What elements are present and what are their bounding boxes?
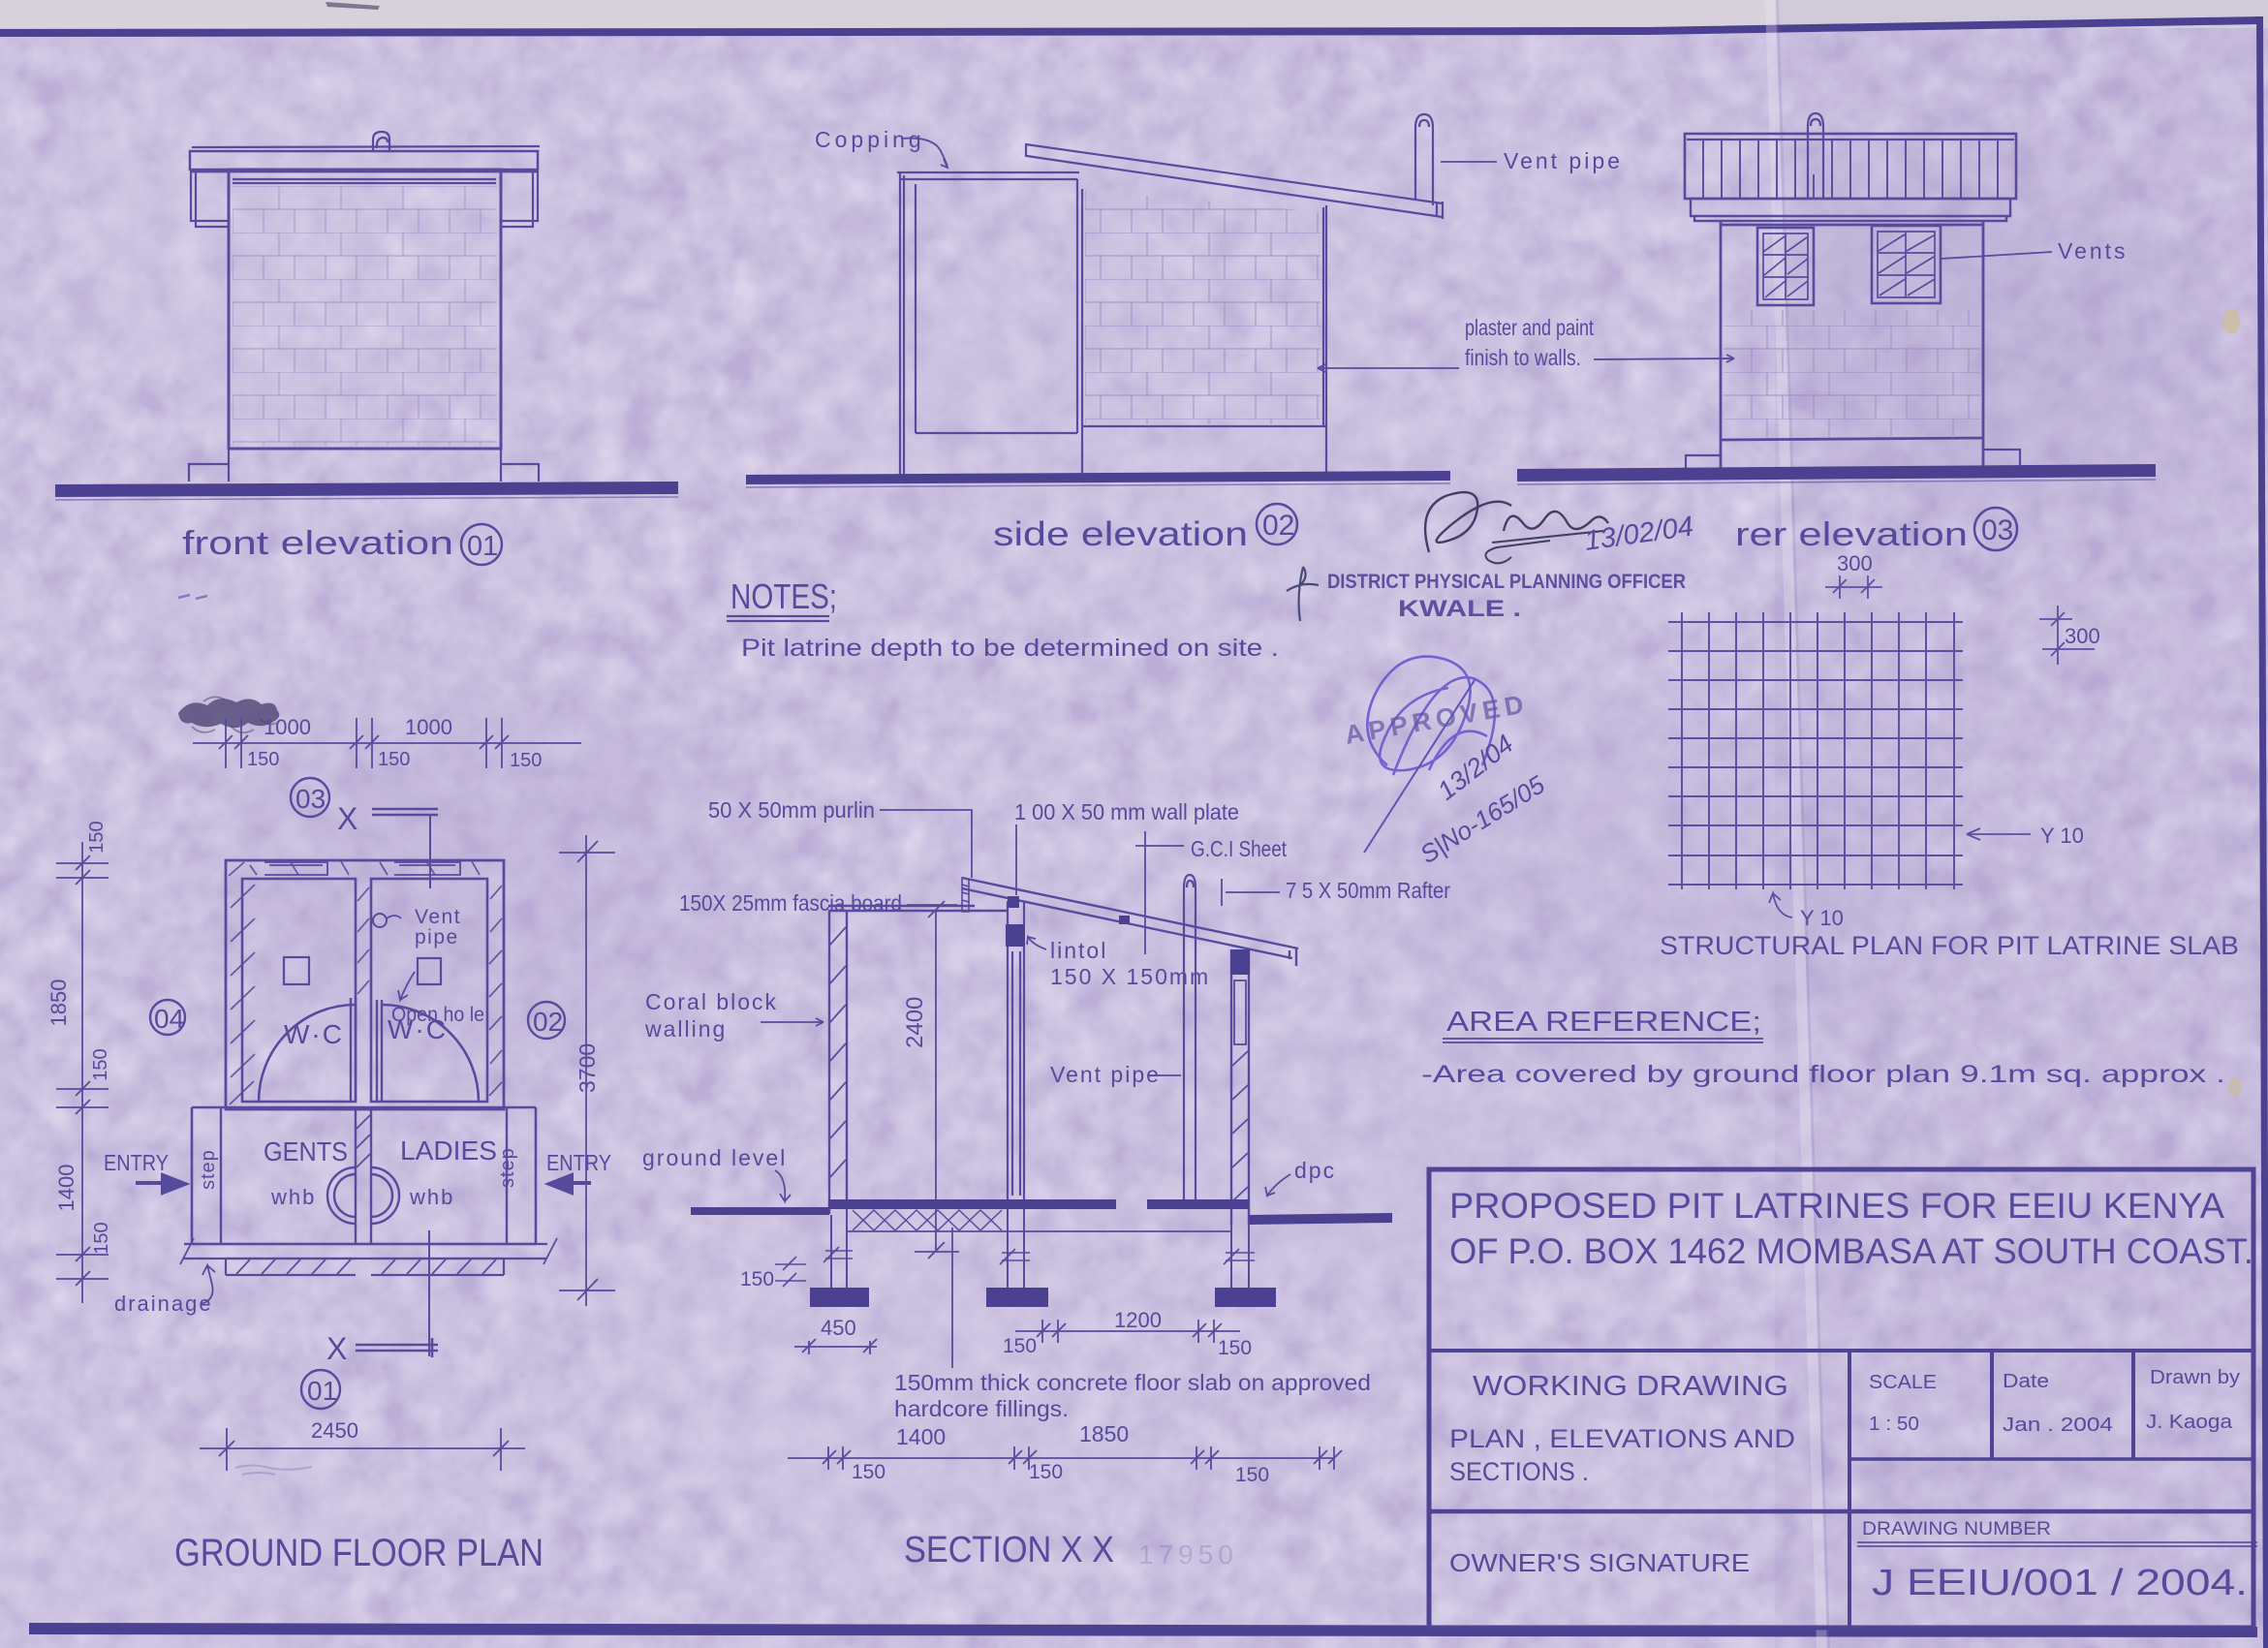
svg-text:Y 10: Y 10 xyxy=(1800,906,1844,930)
svg-text:150: 150 xyxy=(740,1268,774,1290)
svg-text:SECTIONS .: SECTIONS . xyxy=(1449,1457,1589,1486)
svg-text:W·C: W·C xyxy=(284,1019,344,1049)
svg-text:PROPOSED PIT LATRINES FOR: PROPOSED PIT LATRINES FOR EEIU KENYA xyxy=(1449,1186,2224,1226)
svg-text:02: 02 xyxy=(533,1007,563,1037)
svg-text:Date: Date xyxy=(2003,1371,2049,1392)
svg-text:ENTRY: ENTRY xyxy=(546,1150,611,1175)
svg-text:150: 150 xyxy=(90,1048,111,1080)
svg-text:hardcore fillings.: hardcore fillings. xyxy=(894,1396,1069,1421)
svg-text:1400: 1400 xyxy=(896,1424,946,1449)
svg-text:plaster and paint: plaster and paint xyxy=(1465,315,1594,340)
svg-text:Pit latrine depth to be d: Pit latrine depth to be determined on si… xyxy=(741,635,1279,662)
svg-text:step: step xyxy=(198,1149,219,1190)
svg-text:front elevation: front elevation xyxy=(182,525,453,562)
svg-text:02: 02 xyxy=(1262,510,1294,542)
svg-text:X: X xyxy=(337,801,357,836)
svg-text:dpc: dpc xyxy=(1294,1158,1336,1183)
svg-text:1000: 1000 xyxy=(405,715,452,739)
svg-text:300: 300 xyxy=(2065,624,2100,648)
svg-text:Vents: Vents xyxy=(2058,238,2128,264)
svg-text:150: 150 xyxy=(1003,1335,1037,1357)
svg-text:150mm thick concrete floor: 150mm thick concrete floor slab on appro… xyxy=(894,1370,1371,1395)
svg-text:G.C.I Sheet: G.C.I Sheet xyxy=(1191,836,1287,861)
svg-text:150 X 150mm: 150 X 150mm xyxy=(1050,964,1210,989)
svg-text:1850: 1850 xyxy=(47,979,71,1027)
svg-text:150: 150 xyxy=(1218,1337,1252,1359)
svg-text:walling: walling xyxy=(644,1016,727,1042)
svg-text:J EEIU/001 / 2004.: J EEIU/001 / 2004. xyxy=(1872,1563,2248,1603)
svg-text:DRAWING NUMBER: DRAWING NUMBER xyxy=(1862,1519,2051,1539)
svg-text:03: 03 xyxy=(295,784,326,814)
svg-text:50 X 50mm purlin: 50 X 50mm purlin xyxy=(708,797,875,823)
svg-text:Vent pipe: Vent pipe xyxy=(1504,148,1623,173)
svg-text:150: 150 xyxy=(378,749,410,770)
svg-text:side elevation: side elevation xyxy=(993,515,1248,553)
svg-text:150: 150 xyxy=(1029,1461,1063,1483)
svg-text:OWNER'S SIGNATURE: OWNER'S SIGNATURE xyxy=(1449,1548,1750,1577)
svg-text:1200: 1200 xyxy=(1114,1308,1162,1332)
svg-text:ground level: ground level xyxy=(642,1145,787,1170)
svg-text:7 5 X 50mm Rafter: 7 5 X 50mm Rafter xyxy=(1286,878,1450,903)
svg-text:300: 300 xyxy=(1837,551,1873,575)
svg-text:01: 01 xyxy=(307,1376,337,1406)
svg-text:150: 150 xyxy=(852,1461,885,1483)
svg-text:AREA REFERENCE;: AREA REFERENCE; xyxy=(1446,1007,1761,1038)
svg-text:W·C: W·C xyxy=(388,1014,448,1044)
svg-text:GENTS: GENTS xyxy=(264,1136,348,1166)
svg-text:Jan . 2004: Jan . 2004 xyxy=(2003,1415,2113,1436)
svg-text:KWALE .: KWALE . xyxy=(1398,596,1521,622)
svg-text:03: 03 xyxy=(1981,514,2013,546)
svg-text:Drawn by: Drawn by xyxy=(2150,1367,2240,1388)
svg-text:whb: whb xyxy=(409,1185,454,1209)
svg-text:finish to walls.: finish to walls. xyxy=(1465,345,1581,370)
svg-text:2450: 2450 xyxy=(311,1418,358,1443)
svg-text:J. Kaoga: J. Kaoga xyxy=(2146,1412,2233,1433)
svg-text:01: 01 xyxy=(467,531,498,562)
svg-text:NOTES;: NOTES; xyxy=(730,576,837,616)
svg-text:1400: 1400 xyxy=(54,1165,78,1212)
svg-text:150: 150 xyxy=(247,749,279,770)
svg-text:450: 450 xyxy=(821,1316,856,1340)
svg-text:pipe: pipe xyxy=(415,926,459,948)
svg-text:SECTION X X: SECTION X X xyxy=(904,1530,1114,1570)
svg-text:1850: 1850 xyxy=(1079,1421,1129,1446)
svg-text:-Area covered by ground fl: -Area covered by ground floor plan 9.1m … xyxy=(1421,1061,2225,1088)
svg-text:1 : 50: 1 : 50 xyxy=(1869,1414,1919,1435)
svg-text:rer elevation: rer elevation xyxy=(1735,516,1968,553)
svg-text:ENTRY: ENTRY xyxy=(104,1150,169,1175)
svg-text:X: X xyxy=(326,1331,347,1366)
svg-text:Y 10: Y 10 xyxy=(2040,824,2084,848)
svg-text:1000: 1000 xyxy=(264,715,311,739)
svg-text:PLAN , ELEVATIONS AND: PLAN , ELEVATIONS AND xyxy=(1449,1424,1795,1453)
svg-text:lintol: lintol xyxy=(1050,938,1107,963)
svg-text:150: 150 xyxy=(510,750,542,771)
svg-text:1 00 X 50 mm wall plate: 1 00 X 50 mm wall plate xyxy=(1014,799,1239,824)
svg-text:150: 150 xyxy=(1235,1464,1269,1486)
svg-text:GROUND FLOOR PLAN: GROUND FLOOR PLAN xyxy=(174,1532,544,1574)
svg-text:Vent: Vent xyxy=(415,906,461,928)
svg-text:STRUCTURAL PLAN FOR PIT LAT: STRUCTURAL PLAN FOR PIT LATRINE SLAB xyxy=(1660,931,2239,960)
svg-text:17950: 17950 xyxy=(1138,1539,1238,1570)
svg-text:150: 150 xyxy=(91,1222,112,1254)
svg-text:OF P.O. BOX 1462 MOMBASA A: OF P.O. BOX 1462 MOMBASA AT SOUTH COAST. xyxy=(1449,1231,2253,1271)
svg-text:3700: 3700 xyxy=(575,1043,600,1093)
svg-text:150: 150 xyxy=(86,821,108,853)
svg-text:Copping: Copping xyxy=(815,127,925,152)
svg-text:SCALE: SCALE xyxy=(1869,1372,1937,1393)
svg-text:LADIES: LADIES xyxy=(400,1135,497,1166)
svg-text:WORKING DRAWING: WORKING DRAWING xyxy=(1473,1371,1788,1402)
svg-text:Coral block: Coral block xyxy=(645,989,778,1014)
svg-text:whb: whb xyxy=(270,1185,316,1209)
svg-text:04: 04 xyxy=(154,1004,184,1034)
svg-text:DISTRICT PHYSICAL PLANNING OFF: DISTRICT PHYSICAL PLANNING OFFICER xyxy=(1327,571,1686,593)
svg-text:drainage: drainage xyxy=(114,1291,213,1316)
svg-text:2400: 2400 xyxy=(902,997,928,1048)
svg-text:step: step xyxy=(497,1147,518,1188)
svg-text:Vent pipe: Vent pipe xyxy=(1050,1062,1161,1087)
